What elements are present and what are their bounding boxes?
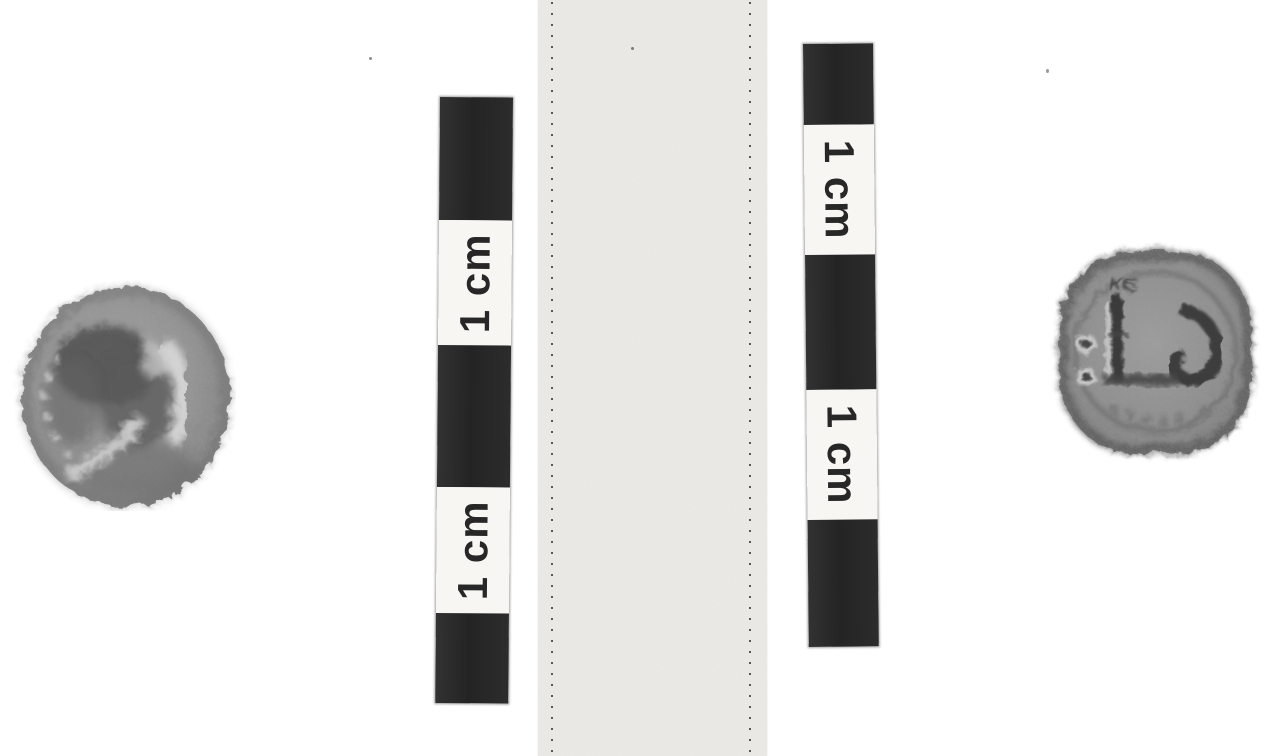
scale-bar-right: 1 cm 1 cm xyxy=(803,43,879,647)
scale-segment-label: 1 cm xyxy=(806,389,877,520)
paper-grain-texture xyxy=(538,0,767,756)
scale-label-1cm: 1 cm xyxy=(818,140,861,240)
scale-segment-black xyxy=(435,613,509,704)
paper-strip xyxy=(538,0,767,756)
coin-obverse-photo xyxy=(12,279,236,511)
coin-obverse-body xyxy=(12,279,236,511)
scale-label-1cm: 1 cm xyxy=(454,233,497,333)
scale-segment-black xyxy=(803,43,874,125)
scale-segment-black xyxy=(437,345,511,488)
coin-reverse-body: KE xyxy=(1048,238,1262,466)
coin-reverse-photo: KE xyxy=(1048,238,1262,466)
scale-bar-left: 1 cm 1 cm xyxy=(435,97,513,704)
scale-segment-black xyxy=(805,254,876,390)
scale-segment-black xyxy=(439,97,513,221)
perforation-dots-right xyxy=(749,2,751,754)
coin-mast xyxy=(1110,294,1121,378)
scale-segment-label: 1 cm xyxy=(438,220,512,346)
scale-segment-label: 1 cm xyxy=(436,487,510,614)
scale-label-1cm: 1 cm xyxy=(452,500,495,600)
photo-canvas: 1 cm 1 cm 1 cm 1 cm xyxy=(0,0,1280,756)
perforation-dots-left xyxy=(551,2,553,754)
dust-speck xyxy=(369,57,372,60)
scale-label-1cm: 1 cm xyxy=(820,405,863,505)
scale-segment-label: 1 cm xyxy=(804,124,875,255)
scale-segment-black xyxy=(808,519,879,647)
coin-deck-line xyxy=(1102,372,1178,384)
coin-inscription: KE xyxy=(1108,274,1136,295)
dust-speck xyxy=(631,47,634,50)
dust-speck xyxy=(1046,69,1049,73)
